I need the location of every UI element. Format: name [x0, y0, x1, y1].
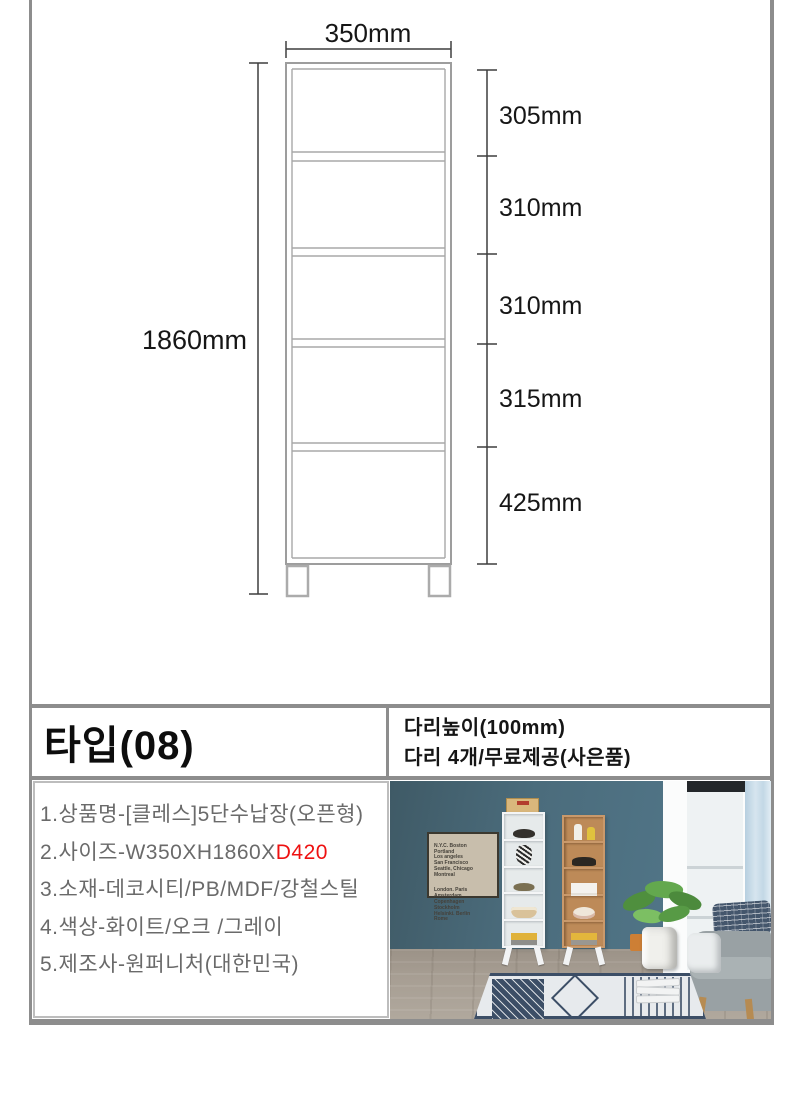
page-bottom-border — [29, 1019, 774, 1025]
books-item — [571, 883, 597, 893]
product-detail-page: 350mm 1860mm 305mm 310mm 310mm 315mm 425… — [0, 0, 800, 1100]
section-label-5: 425mm — [499, 489, 582, 517]
hat-item — [513, 883, 534, 891]
shelf-cell — [564, 896, 603, 920]
shelf-cell — [504, 868, 543, 893]
cabinet-outline — [286, 63, 451, 564]
rug-pattern — [551, 974, 599, 1019]
section-dimension-labels: 305mm 310mm 310mm 315mm 425mm — [499, 102, 582, 517]
spec-bar-divider — [386, 704, 389, 780]
product-info-box: 1.상품명-[클레스]5단수납장(오픈형) 2.사이즈-W350XH1860XD… — [33, 781, 389, 1018]
storage-box-on-top — [506, 798, 539, 813]
oak-shelf-unit — [562, 815, 605, 948]
spec-bar-bottom-border — [29, 776, 774, 780]
photo-city-poster: N.Y.C. Boston Portland Los angeles San F… — [427, 832, 499, 898]
shelf-cell — [564, 843, 603, 867]
paper-bag-planter — [642, 927, 677, 969]
section-dimension-line — [477, 70, 497, 564]
shelf-cell — [564, 817, 603, 841]
height-dimension-line — [249, 63, 268, 594]
shelf-cell — [504, 894, 543, 919]
sofa-white-throw — [687, 933, 721, 973]
section-label-2: 310mm — [499, 194, 582, 222]
shelf-cell — [564, 869, 603, 893]
shelf-cell — [504, 841, 543, 866]
info-size-prefix: 2.사이즈-W350XH1860X — [40, 841, 276, 864]
hat-item — [513, 829, 535, 838]
shelf-cell — [504, 921, 543, 946]
height-dimension-label: 1860mm — [142, 325, 247, 355]
width-dimension-label: 350mm — [325, 18, 412, 48]
toy-item — [573, 907, 595, 919]
leg-info-cell: 다리높이(100mm) 다리 4개/무료제공(사은품) — [404, 708, 764, 776]
info-line-size: 2.사이즈-W350XH1860XD420 — [40, 834, 387, 872]
info-line-material: 3.소재-데코시티/PB/MDF/강철스틸 — [40, 871, 387, 909]
photo-window-top-bar — [687, 781, 747, 792]
shelf-cell — [504, 814, 543, 839]
product-photo: N.Y.C. Boston Portland Los angeles San F… — [390, 781, 771, 1019]
rug-pattern — [492, 979, 544, 1019]
info-line-product-name: 1.상품명-[클레스]5단수납장(오픈형) — [40, 796, 387, 834]
poster-text-block-2: London. Paris Amsterdam Copenhagen Stock… — [434, 888, 495, 923]
shelf-cell — [564, 922, 603, 946]
bottle-item — [574, 824, 582, 840]
basket-item — [511, 907, 537, 918]
cabinet-legs — [287, 566, 450, 596]
info-size-depth-highlight: D420 — [276, 841, 328, 864]
zebra-vase-item — [516, 845, 532, 865]
section-label-1: 305mm — [499, 102, 582, 130]
section-label-4: 315mm — [499, 385, 582, 413]
dimension-diagram: 350mm 1860mm 305mm 310mm 310mm 315mm 425… — [0, 0, 800, 705]
section-label-3: 310mm — [499, 292, 582, 320]
type-label: 타입(08) — [44, 708, 195, 776]
white-shelf-unit — [502, 812, 545, 948]
yellow-box-item — [571, 933, 597, 945]
bottle-item — [587, 827, 595, 840]
poster-text-block-1: N.Y.C. Boston Portland Los angeles San F… — [434, 844, 495, 879]
info-line-color: 4.색상-화이트/오크 /그레이 — [40, 909, 387, 947]
leg-height-label: 다리높이(100mm) — [404, 711, 764, 740]
cap-item — [572, 857, 596, 866]
magazine-stack — [636, 979, 680, 1005]
yellow-box-item — [511, 933, 537, 945]
leg-count-label: 다리 4개/무료제공(사은품) — [404, 741, 764, 770]
window-mullion — [687, 866, 743, 869]
info-line-manufacturer: 5.제조사-원퍼니처(대한민국) — [40, 946, 387, 984]
